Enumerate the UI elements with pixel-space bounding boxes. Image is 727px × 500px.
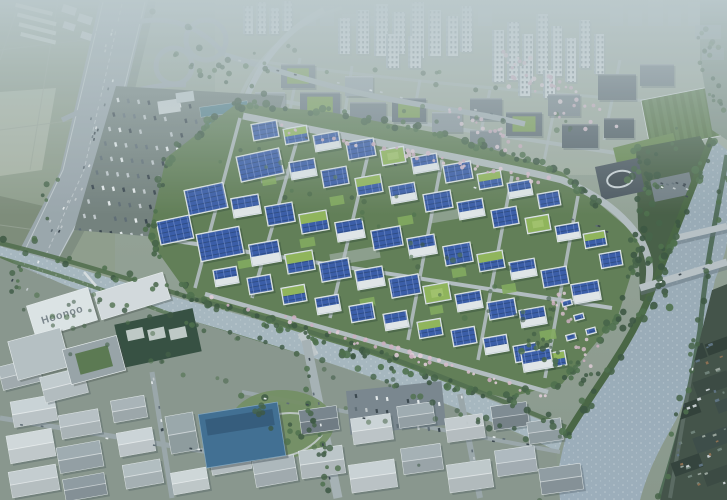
scene-svg: Hoonoo — [0, 0, 727, 500]
aerial-render-image: Hoonoo — [0, 0, 727, 500]
global-tint — [0, 0, 727, 500]
